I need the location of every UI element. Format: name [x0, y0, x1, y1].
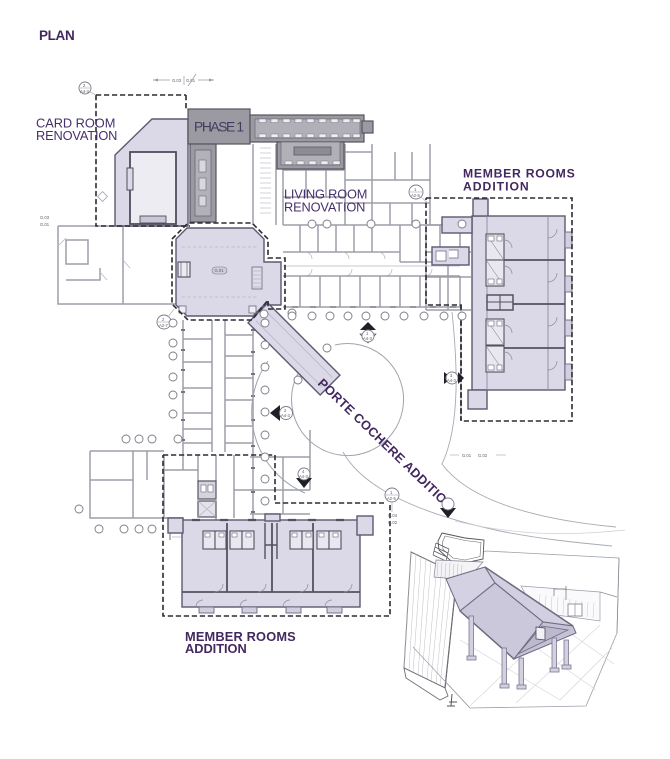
- svg-text:G.01: G.01: [462, 453, 472, 458]
- svg-text:MEMBER ROOMS: MEMBER ROOMS: [463, 167, 575, 181]
- svg-text:A4-3: A4-3: [80, 89, 90, 94]
- svg-text:G.02: G.02: [388, 520, 398, 525]
- svg-text:ADDITION: ADDITION: [463, 180, 529, 194]
- svg-text:A2-5: A2-5: [411, 193, 421, 198]
- svg-text:G.02: G.02: [478, 453, 488, 458]
- svg-text:RENOVATION: RENOVATION: [284, 200, 366, 215]
- svg-text:PLAN: PLAN: [39, 28, 75, 43]
- svg-text:PHASE 1: PHASE 1: [194, 120, 244, 135]
- svg-text:ADDITION: ADDITION: [185, 641, 247, 656]
- svg-text:G.04: G.04: [388, 513, 398, 518]
- svg-text:G.03: G.03: [172, 78, 182, 83]
- svg-text:A4-3: A4-3: [281, 413, 291, 418]
- svg-text:A4-3: A4-3: [363, 336, 373, 341]
- svg-text:A4-3: A4-3: [447, 378, 457, 383]
- svg-text:A4-3: A4-3: [299, 474, 309, 479]
- svg-text:G.01: G.01: [215, 268, 225, 273]
- svg-text:A2-7: A2-7: [159, 323, 169, 328]
- svg-text:G.01: G.01: [40, 222, 50, 227]
- svg-text:G.03: G.03: [40, 215, 50, 220]
- svg-text:RENOVATION: RENOVATION: [36, 128, 118, 143]
- svg-text:A2-5: A2-5: [387, 496, 397, 501]
